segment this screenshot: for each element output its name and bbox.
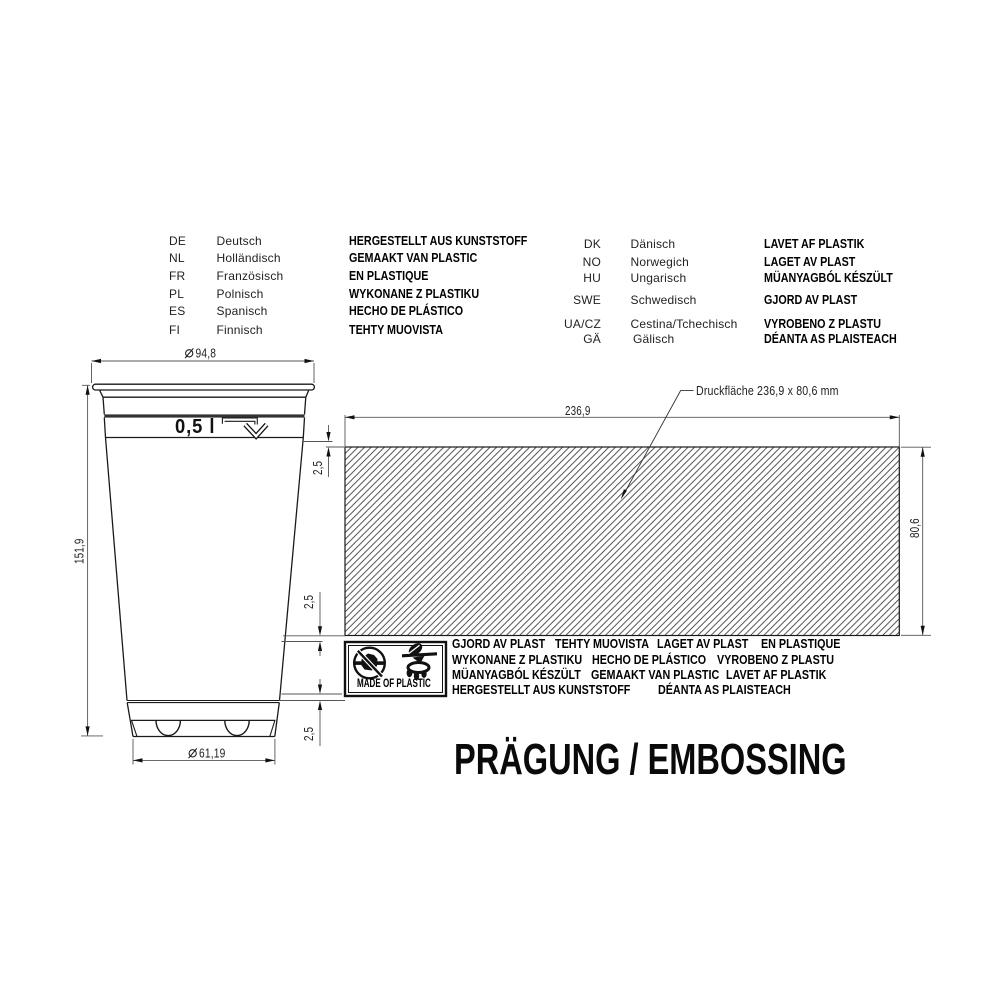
- svg-text:Druckfläche 236,9 x 80,6 mm: Druckfläche 236,9 x 80,6 mm: [696, 384, 839, 398]
- svg-text:151,9: 151,9: [74, 539, 87, 564]
- svg-text:2,5: 2,5: [303, 727, 316, 741]
- svg-text:94,8: 94,8: [196, 348, 217, 361]
- svg-text:80,6: 80,6: [909, 518, 922, 538]
- svg-text:61,19: 61,19: [199, 748, 225, 761]
- svg-text:236,9: 236,9: [565, 405, 590, 418]
- svg-text:2,5: 2,5: [303, 595, 316, 609]
- svg-text:2,5: 2,5: [312, 461, 325, 475]
